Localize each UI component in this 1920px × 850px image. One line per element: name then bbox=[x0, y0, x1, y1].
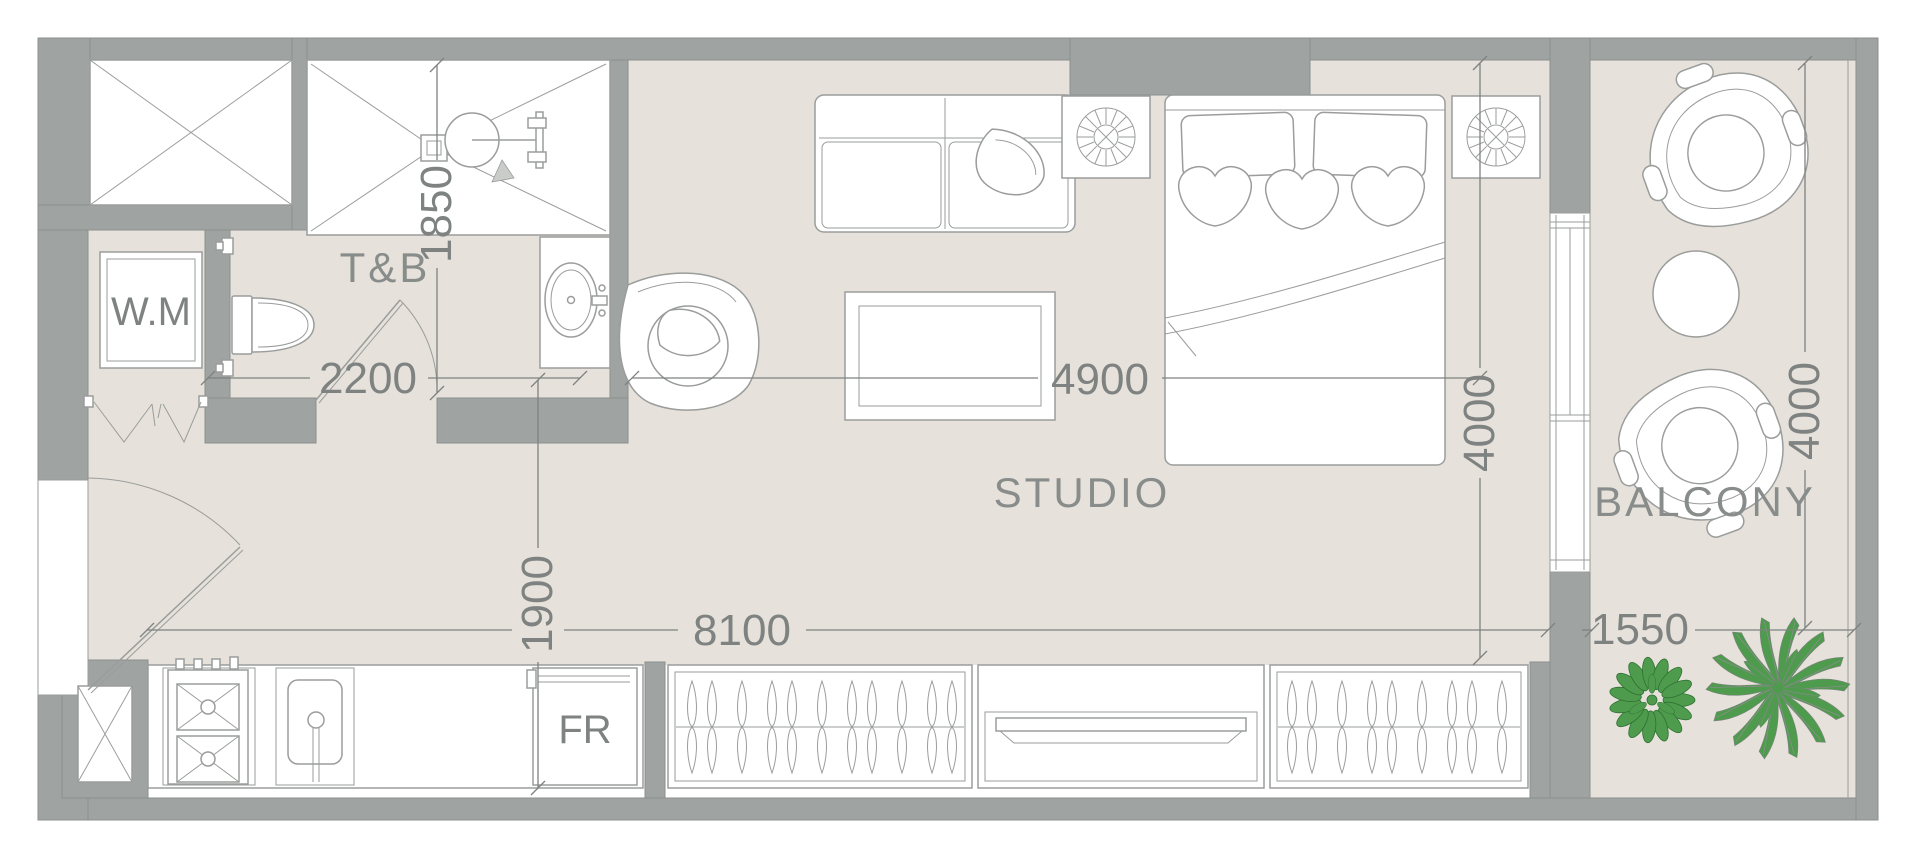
washing-machine-label: W.M bbox=[111, 290, 191, 334]
stove bbox=[168, 657, 248, 784]
studio-label: STUDIO bbox=[994, 469, 1171, 516]
dim-text: 1550 bbox=[1591, 605, 1689, 654]
nightstand-left bbox=[1062, 96, 1150, 178]
service-shaft-bottom bbox=[78, 686, 132, 782]
nightstand-right bbox=[1452, 96, 1540, 178]
tb-label: T&B bbox=[340, 244, 431, 291]
dim-text: 8100 bbox=[693, 606, 791, 655]
washing-machine: W.M bbox=[100, 252, 202, 368]
wardrobe-hanger-section-left bbox=[668, 665, 972, 788]
balcony-table bbox=[1653, 251, 1739, 337]
wardrobe-shelf-section bbox=[978, 665, 1264, 788]
armchair bbox=[619, 273, 758, 410]
sofa bbox=[815, 95, 1075, 232]
bed bbox=[1165, 95, 1445, 465]
service-shaft-top bbox=[90, 60, 292, 205]
dim-text: 4000 bbox=[1780, 362, 1829, 460]
bathroom-sink bbox=[540, 237, 610, 368]
shower-drain-icon bbox=[421, 135, 447, 161]
fridge: FR bbox=[527, 668, 637, 785]
sliding-door bbox=[1550, 213, 1590, 572]
dim-text: 2200 bbox=[319, 354, 417, 403]
floor-plan: W.M bbox=[0, 0, 1920, 850]
balcony-label: BALCONY bbox=[1594, 478, 1816, 525]
dim-text: 1900 bbox=[513, 555, 562, 653]
entry-opening bbox=[38, 480, 88, 695]
dim-text: 4000 bbox=[1455, 374, 1504, 472]
coffee-table bbox=[845, 292, 1055, 420]
dim-text: 4900 bbox=[1051, 355, 1149, 404]
floor-plan-drawing: W.M bbox=[0, 0, 1920, 850]
fridge-label: FR bbox=[558, 708, 611, 752]
ceiling-fan-icon bbox=[1467, 108, 1525, 166]
wardrobe-hanger-section-right bbox=[1270, 665, 1528, 788]
ceiling-fan-icon bbox=[1077, 108, 1135, 166]
